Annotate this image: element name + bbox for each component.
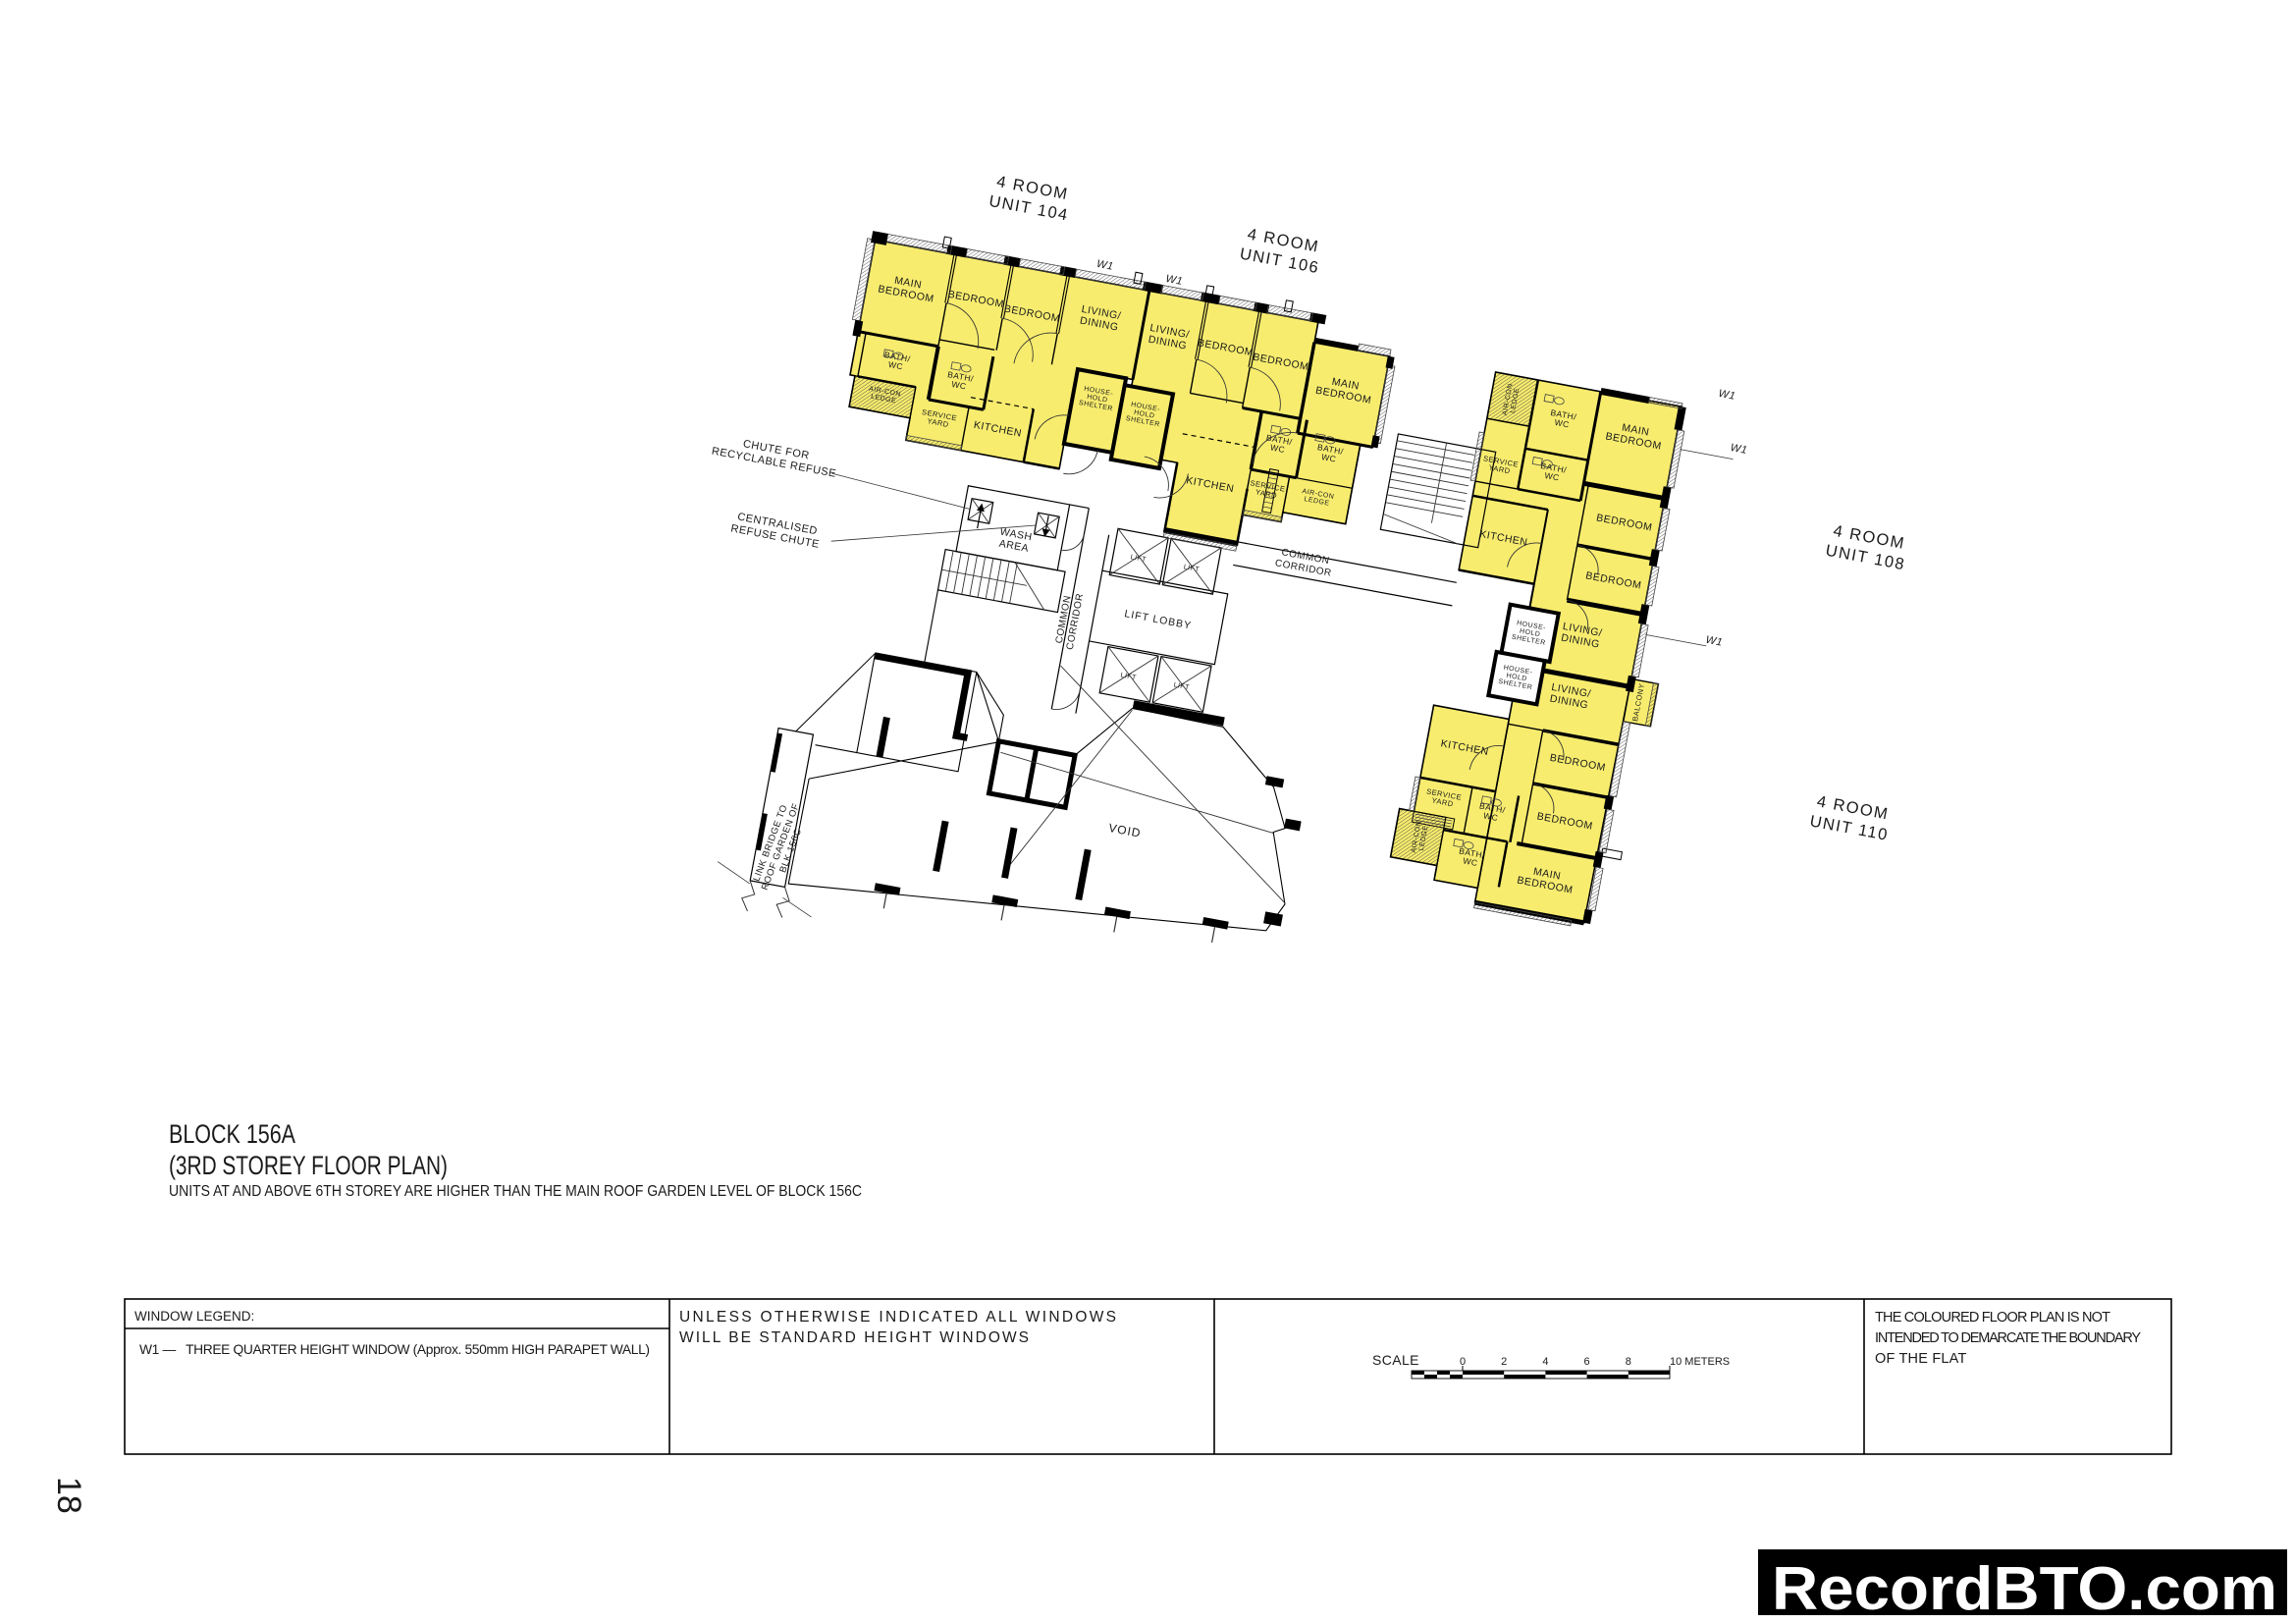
svg-text:INTENDED TO DEMARCATE THE BOUN: INTENDED TO DEMARCATE THE BOUNDARY bbox=[1875, 1330, 2141, 1346]
svg-text:BLOCK 156A: BLOCK 156A bbox=[169, 1119, 295, 1149]
svg-text:W1 — THREE QUARTER HEIGHT WI: W1 — THREE QUARTER HEIGHT WINDOW (Approx… bbox=[139, 1342, 650, 1357]
svg-text:UNITS AT AND ABOVE 6TH STOREY: UNITS AT AND ABOVE 6TH STOREY ARE HIGHER… bbox=[169, 1183, 862, 1200]
svg-text:18: 18 bbox=[50, 1477, 87, 1514]
svg-text:RecordBTO.com: RecordBTO.com bbox=[1772, 1555, 2277, 1623]
svg-text:WINDOW LEGEND:: WINDOW LEGEND: bbox=[134, 1309, 254, 1324]
svg-text:THE COLOURED FLOOR PLAN IS NOT: THE COLOURED FLOOR PLAN IS NOT bbox=[1875, 1310, 2110, 1326]
svg-text:2: 2 bbox=[1501, 1356, 1507, 1368]
svg-text:10 METERS: 10 METERS bbox=[1670, 1356, 1730, 1368]
svg-text:6: 6 bbox=[1584, 1356, 1590, 1368]
svg-text:WILL BE STANDARD HEIGHT WINDOW: WILL BE STANDARD HEIGHT WINDOWS bbox=[679, 1329, 1029, 1346]
svg-text:SCALE: SCALE bbox=[1372, 1352, 1419, 1368]
svg-text:OF THE FLAT: OF THE FLAT bbox=[1875, 1351, 1967, 1367]
svg-text:8: 8 bbox=[1626, 1356, 1631, 1368]
svg-text:(3RD STOREY FLOOR PLAN): (3RD STOREY FLOOR PLAN) bbox=[169, 1151, 448, 1180]
svg-text:4: 4 bbox=[1542, 1356, 1548, 1368]
